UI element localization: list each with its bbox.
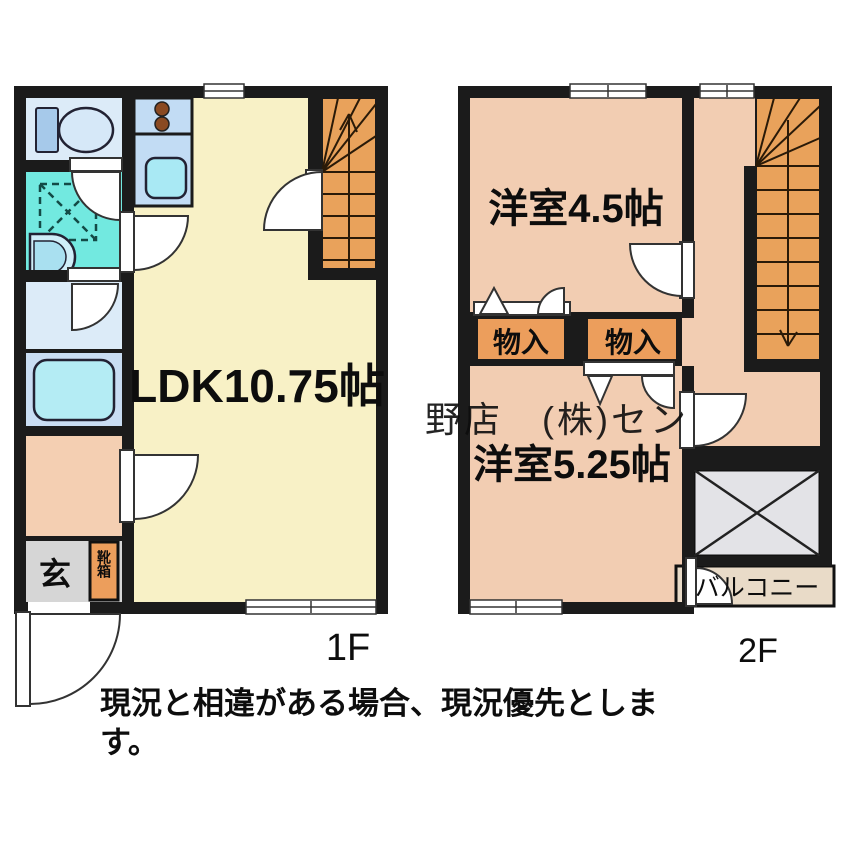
floor-plan-page: LDK10.75帖 玄 靴箱 1F [0, 0, 846, 846]
watermark-text: 野店 (株)セン [425, 399, 689, 440]
disclaimer-note: 現況と相違がある場合、現況優先としま す。 [100, 686, 658, 760]
washroom-door-leaf [120, 212, 134, 272]
label-balcony: バルコニー [695, 574, 820, 602]
storage-right-track [584, 362, 674, 375]
void-box [694, 470, 820, 556]
note-line-1: 現況と相違がある場合、現況優先としま [100, 686, 658, 721]
floor-plan-canvas: LDK10.75帖 玄 靴箱 1F [0, 0, 846, 846]
label-floor-1f: 1F [326, 627, 370, 669]
window-west-room-north [570, 84, 646, 98]
dressing-door-leaf [68, 268, 120, 281]
window-ldk-south [246, 600, 376, 614]
floor-2f: 洋室4.5帖 物入 物入 洋室5.25帖 バルコニー 2F [458, 84, 834, 670]
label-floor-2f: 2F [738, 632, 778, 670]
label-shoebox: 靴箱 [96, 549, 112, 579]
bathtub [34, 360, 114, 420]
kitchen-counter [134, 98, 192, 206]
window-south-room [470, 600, 562, 614]
entrance-opening [28, 602, 90, 614]
entrance-door-leaf [16, 612, 30, 706]
note-line-2: す。 [100, 725, 159, 760]
toilet-fixture [36, 108, 113, 152]
label-storage-left: 物入 [493, 327, 549, 358]
label-ldk: LDK10.75帖 [129, 360, 385, 412]
stairs-2f [756, 98, 820, 360]
label-south-room: 洋室5.25帖 [473, 443, 671, 487]
toilet-door-leaf [70, 158, 122, 171]
stove-burner [155, 117, 169, 131]
hall-door-leaf [120, 450, 134, 522]
stove-burner [155, 102, 169, 116]
window-hall-north [700, 84, 754, 98]
window-kitchen [204, 84, 244, 98]
label-storage-right: 物入 [605, 327, 661, 358]
room-hall-1f [26, 428, 122, 538]
kitchen-sink [146, 158, 186, 198]
stairs-1f [322, 98, 376, 270]
label-genkan: 玄 [39, 556, 71, 592]
floor-1f: LDK10.75帖 玄 靴箱 1F [14, 84, 388, 706]
label-west-room: 洋室4.5帖 [488, 187, 664, 231]
